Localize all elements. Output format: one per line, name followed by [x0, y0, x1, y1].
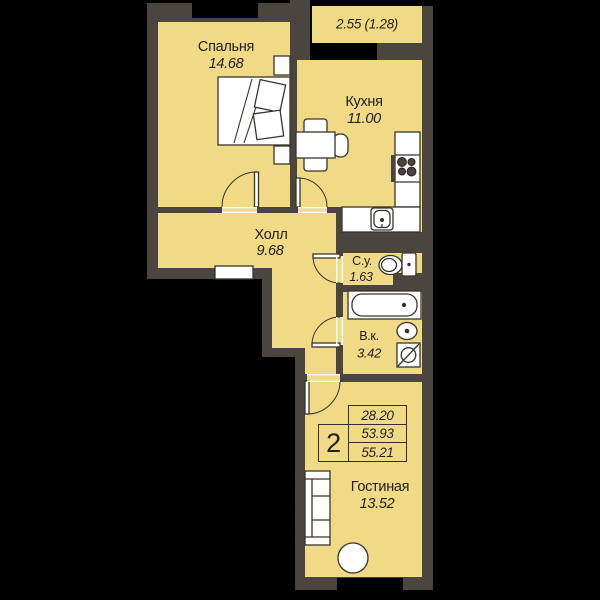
entrance-door	[215, 266, 253, 279]
living-area-label: 13.52	[360, 496, 395, 512]
kitchen-sink	[371, 208, 393, 230]
bathroom-sink	[397, 323, 417, 340]
kitchen-door	[296, 178, 327, 207]
bedroom-door	[222, 172, 259, 207]
kitchen-name-label: Кухня	[345, 94, 382, 110]
nightstand-bottom	[274, 146, 290, 164]
toilet	[379, 253, 416, 276]
kitchen-table	[296, 132, 335, 158]
hall-area-label: 9.68	[256, 243, 283, 259]
bathroom-door	[312, 317, 340, 347]
bathtub	[348, 291, 421, 319]
nightstand-top	[274, 56, 290, 75]
hall-name-label: Холл	[255, 227, 288, 243]
balcony-area-label: 2.55 (1.28)	[336, 17, 398, 32]
washing-machine	[397, 343, 420, 367]
kitchen-area-label: 11.00	[347, 111, 381, 127]
living-name-label: Гостиная	[351, 479, 409, 495]
bed	[218, 77, 290, 145]
wc-area-label: 1.63	[349, 270, 372, 284]
wc-name-label: С.у.	[352, 254, 372, 268]
sofa	[305, 471, 330, 545]
living-door	[305, 381, 340, 414]
wc-door	[313, 254, 340, 283]
bedroom-area-label: 14.68	[209, 56, 244, 72]
floor-plan: 2 28.20 53.93 55.21	[0, 0, 600, 600]
bedroom-name-label: Спальня	[198, 39, 254, 55]
round-table	[338, 543, 368, 573]
bathroom-area-label: 3.42	[357, 346, 381, 361]
bathroom-name-label: В.к.	[359, 329, 379, 343]
fixtures-layer	[0, 0, 600, 600]
